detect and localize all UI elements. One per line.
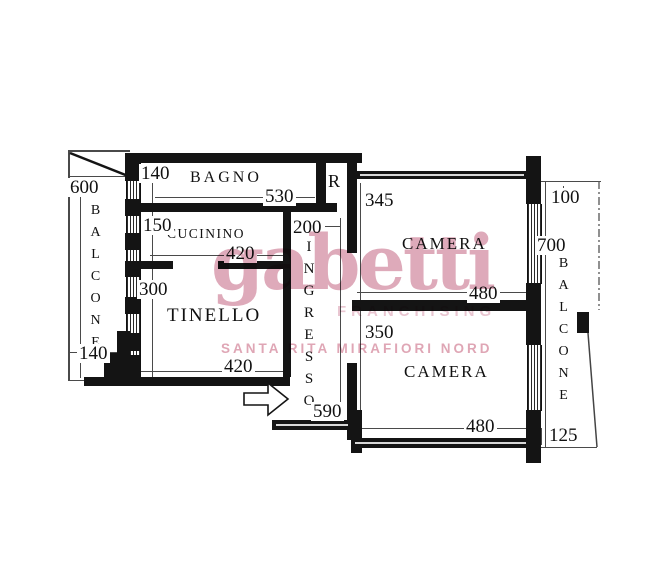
dim-tinello-w: 420	[222, 357, 255, 376]
dim-balcone-right-len: 700	[535, 236, 568, 255]
room-label-ripostiglio: R	[328, 171, 340, 192]
dim-balcone-left-len: 600	[68, 178, 101, 197]
dim-tinello-h: 300	[137, 280, 170, 299]
room-label-tinello: TINELLO	[167, 305, 261, 327]
dim-camera-top-w: 480	[467, 284, 500, 303]
dim-balcone-right-bot: 125	[547, 426, 580, 445]
entrance-arrow-icon	[243, 381, 291, 417]
dim-cucinino-h: 150	[141, 216, 174, 235]
dim-ingresso-len: 590	[311, 402, 344, 421]
room-label-camera-top: CAMERA	[402, 234, 487, 254]
dim-camera-top-h: 345	[363, 191, 396, 210]
dim-balcone-left-w: 140	[77, 344, 110, 363]
room-label-balcone-right: BALCONE	[555, 256, 571, 410]
entrance-arrow-shape	[244, 383, 288, 415]
balcony-right-slant-edge	[588, 333, 597, 447]
room-label-cucinino: CUCININO	[167, 226, 245, 242]
dim-camera-bottom-h: 350	[363, 323, 396, 342]
room-label-ingresso: INGRESSO	[300, 239, 317, 415]
dim-balcone-right-top: 100	[549, 188, 582, 207]
balcony-left-diagonal	[70, 153, 128, 176]
room-label-bagno: BAGNO	[190, 169, 262, 187]
room-label-camera-bottom: CAMERA	[404, 362, 489, 382]
dim-ingresso-w: 200	[291, 218, 324, 237]
room-label-balcone-left: BALCONE	[87, 203, 103, 357]
floor-plan: BAGNO CUCININO TINELLO R CAMERA CAMERA I…	[0, 0, 672, 581]
dim-camera-bottom-w: 480	[464, 417, 497, 436]
dim-bagno-offset: 140	[139, 164, 172, 183]
dim-bagno-w: 530	[263, 187, 296, 206]
dim-cucinino-w: 420	[224, 244, 257, 263]
